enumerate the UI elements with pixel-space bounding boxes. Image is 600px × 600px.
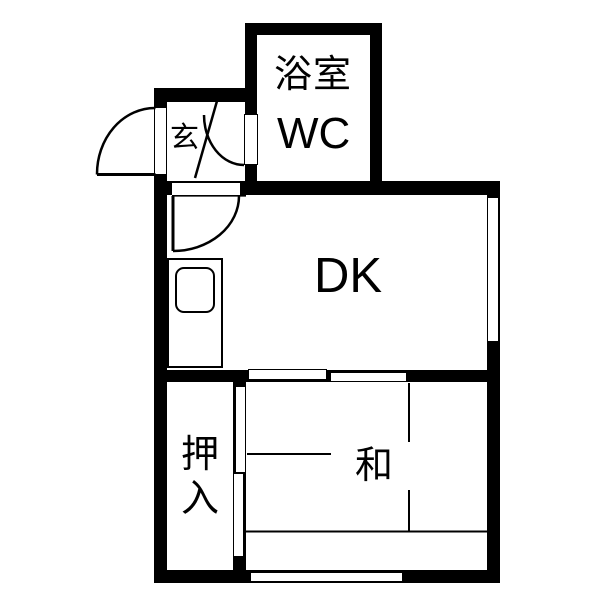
label-oshiire: 押入 [181,434,219,521]
label-genkan: 玄 [170,124,199,153]
dk-door-arc [173,196,239,251]
label-oshiire-char2: 入 [181,478,219,520]
label-washitsu: 和 [336,442,412,489]
floorplan-canvas: 浴室 WC 玄 DK 和 押入 [0,0,600,600]
label-bath: 浴室 [274,56,352,94]
label-wc: WC [277,112,350,156]
entrance-door-arc [97,108,156,175]
label-dk: DK [314,252,382,301]
label-oshiire-char1: 押 [181,434,219,476]
